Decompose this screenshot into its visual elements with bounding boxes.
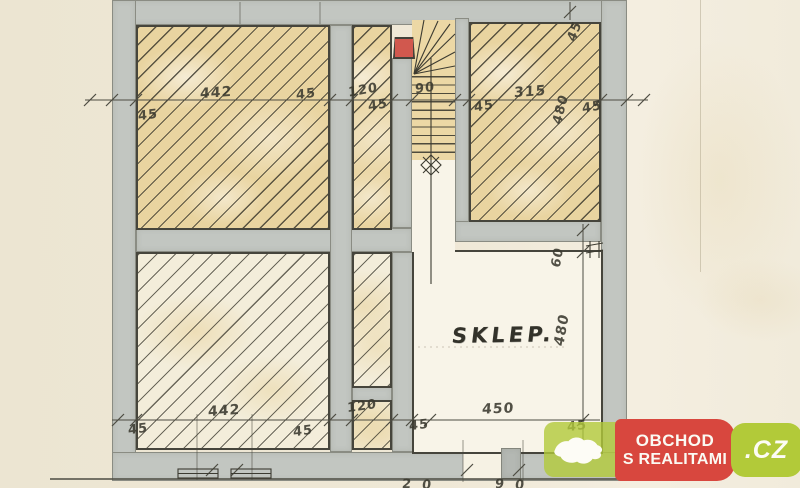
- dimension-label: 45: [565, 19, 585, 44]
- dimension-label: 315: [514, 83, 547, 101]
- logo-map-panel: [544, 422, 616, 477]
- logo-tld: .CZ: [745, 436, 788, 465]
- labels-layer: SKLEP. 442451209031545454545454806048044…: [0, 0, 800, 488]
- logo-line1: OBCHOD: [636, 431, 715, 451]
- dimension-label: 90: [415, 80, 435, 98]
- dimension-label: 0: [421, 478, 433, 488]
- dimension-label: 45: [138, 107, 158, 125]
- czech-map-icon: [551, 430, 609, 470]
- room-name-sklep: SKLEP.: [450, 322, 556, 348]
- dimension-label: 480: [550, 92, 571, 126]
- watermark-logo: OBCHOD S REALITAMI .CZ: [544, 419, 800, 481]
- dimension-label: 45: [296, 86, 316, 104]
- dimension-label: 480: [552, 312, 573, 348]
- dimension-label: 2: [401, 477, 413, 488]
- dimension-label: 120: [347, 397, 377, 416]
- dimension-label: 9: [494, 477, 506, 488]
- logo-text-panel: OBCHOD S REALITAMI: [615, 419, 735, 481]
- dimension-label: 45: [409, 417, 429, 435]
- dimension-label: 0: [514, 478, 526, 488]
- dimension-label: 45: [582, 98, 603, 117]
- dimension-label: 442: [208, 402, 241, 420]
- dimension-label: 45: [128, 421, 148, 439]
- logo-line2: S REALITAMI: [623, 451, 727, 469]
- dimension-label: 450: [481, 400, 514, 417]
- dimension-label: 45: [293, 423, 313, 441]
- logo-tld-panel: .CZ: [731, 423, 800, 477]
- dimension-label: 45: [474, 97, 495, 116]
- scanned-floorplan: SKLEP. 442451209031545454545454806048044…: [0, 0, 800, 488]
- dimension-label: 45: [368, 96, 389, 115]
- dimension-label: 60: [549, 246, 567, 270]
- dimension-label: 442: [200, 84, 233, 102]
